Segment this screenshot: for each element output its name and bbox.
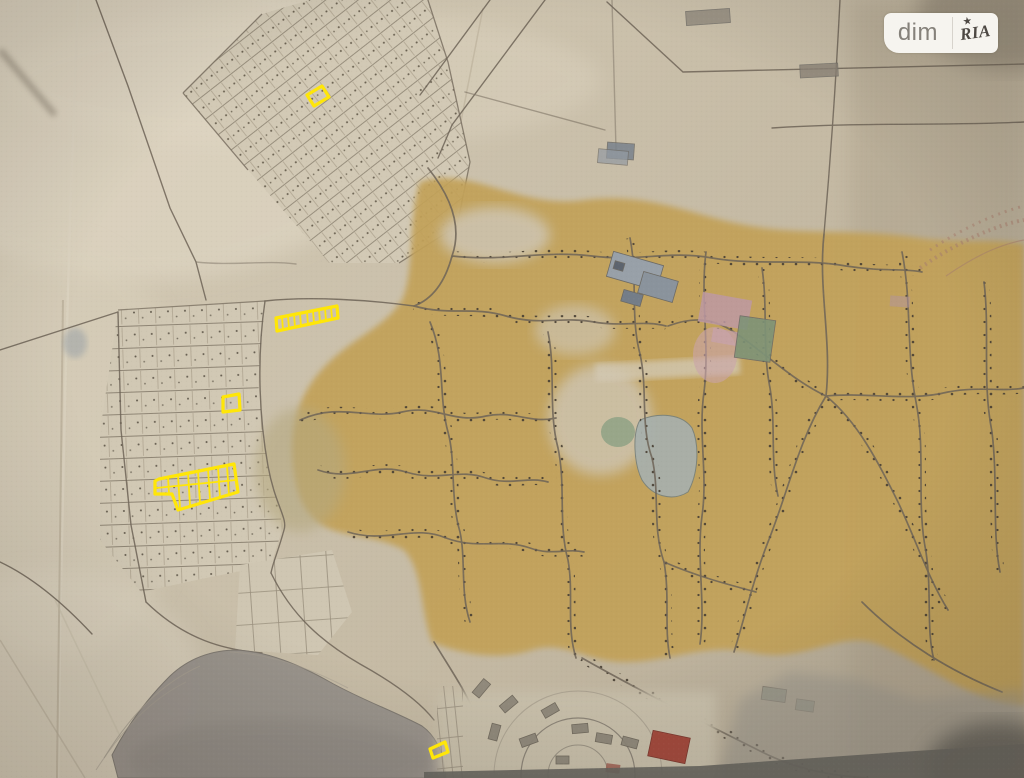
highlight-plot-2-divider	[325, 308, 326, 321]
highlight-plot-2-divider	[288, 316, 289, 328]
photo-vignette	[0, 0, 1024, 778]
highlight-plot-4-divider	[168, 477, 169, 493]
watermark-ria-label: ★ RIA	[959, 21, 992, 45]
highlight-plot-2-divider	[282, 317, 283, 330]
highlight-plot-2-divider	[294, 314, 295, 327]
ria-star-icon: ★	[963, 15, 973, 27]
highlight-plot-2-divider	[313, 311, 314, 323]
watermark-dim-label: dim	[884, 13, 952, 53]
land-plot-listing-photo[interactable]: dim ★ RIA	[0, 0, 1024, 778]
map-image	[0, 0, 1024, 778]
highlight-plot-2-divider	[307, 312, 308, 325]
highlight-plot-2-divider	[331, 307, 332, 319]
highlight-plot-2-divider	[319, 310, 320, 322]
dimria-watermark: dim ★ RIA	[884, 13, 998, 53]
highlight-plot-2-divider	[300, 313, 301, 326]
